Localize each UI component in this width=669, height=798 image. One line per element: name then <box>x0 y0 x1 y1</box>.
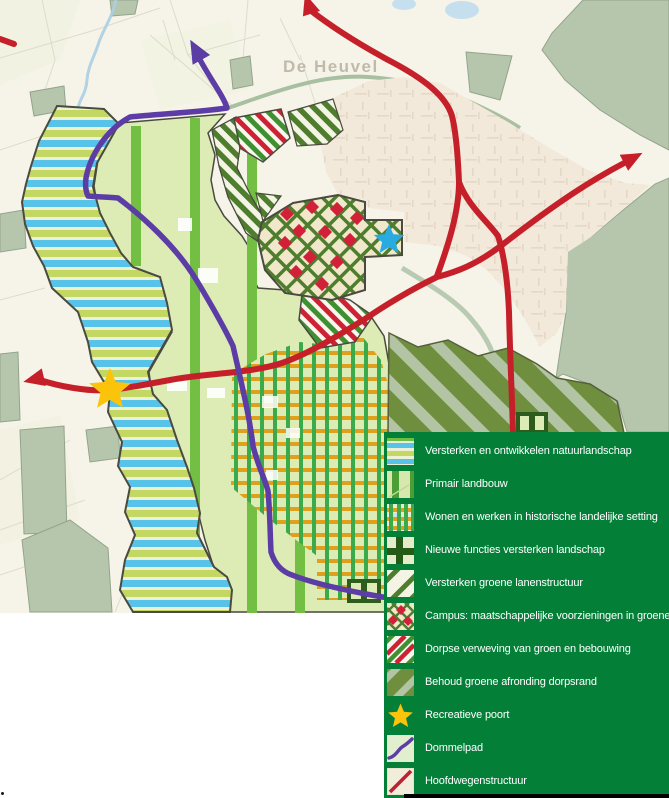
legend-label: Versterken groene lanenstructuur <box>425 578 583 589</box>
bottom-border-bar <box>404 794 669 798</box>
dark-green-cross-swatch-icon <box>387 537 414 564</box>
legend-item-campus: Campus: maatschappelijke voorzieningen i… <box>384 600 669 633</box>
red-green-stripes-swatch-icon <box>387 636 414 663</box>
legend-label: Campus: maatschappelijke voorzieningen i… <box>425 611 669 622</box>
green-bands-swatch-icon <box>387 471 414 498</box>
pond <box>445 1 479 19</box>
red-road-swatch-icon <box>387 768 414 795</box>
legend-label: Versterken en ontwikkelen natuurlandscha… <box>425 446 632 457</box>
purple-path-swatch-icon <box>387 735 414 762</box>
yellow-star-icon <box>387 702 414 729</box>
legend-item-natuurlandschap: Versterken en ontwikkelen natuurlandscha… <box>384 435 669 468</box>
legend-item-dommelpad: Dommelpad <box>384 732 669 765</box>
legend-label: Nieuwe functies versterken landschap <box>425 545 605 556</box>
planning-map-figure: De Heuvel <box>0 0 669 798</box>
legend-label: Hoofdwegenstructuur <box>425 776 527 787</box>
orange-green-grid-swatch-icon <box>387 504 414 531</box>
olive-sage-stripes-swatch-icon <box>387 669 414 696</box>
legend-label: Primair landbouw <box>425 479 508 490</box>
stray-dot <box>1 792 4 795</box>
legend-item-primair-landbouw: Primair landbouw <box>384 468 669 501</box>
legend-label: Wonen en werken in historische landelijk… <box>425 512 658 523</box>
legend-label: Dommelpad <box>425 743 483 754</box>
natuur-stripes-swatch-icon <box>387 438 414 465</box>
legend-item-wonen-werken: Wonen en werken in historische landelijk… <box>384 501 669 534</box>
legend-item-dorpse-verweving: Dorpse verweving van groen en bebouwing <box>384 633 669 666</box>
legend-panel: Versterken en ontwikkelen natuurlandscha… <box>384 432 669 798</box>
place-label: De Heuvel <box>283 57 379 76</box>
legend-item-nieuwe-functies: Nieuwe functies versterken landschap <box>384 534 669 567</box>
legend-label: Behoud groene afronding dorpsrand <box>425 677 597 688</box>
legend-item-behoud-dorpsrand: Behoud groene afronding dorpsrand <box>384 666 669 699</box>
campus-lattice-swatch-icon <box>387 603 414 630</box>
green-diagonal-stripes-swatch-icon <box>387 570 414 597</box>
legend-label: Dorpse verweving van groen en bebouwing <box>425 644 631 655</box>
legend-item-recreatieve-poort: Recreatieve poort <box>384 699 669 732</box>
legend-item-lanenstructuur: Versterken groene lanenstructuur <box>384 567 669 600</box>
legend-label: Recreatieve poort <box>425 710 509 721</box>
